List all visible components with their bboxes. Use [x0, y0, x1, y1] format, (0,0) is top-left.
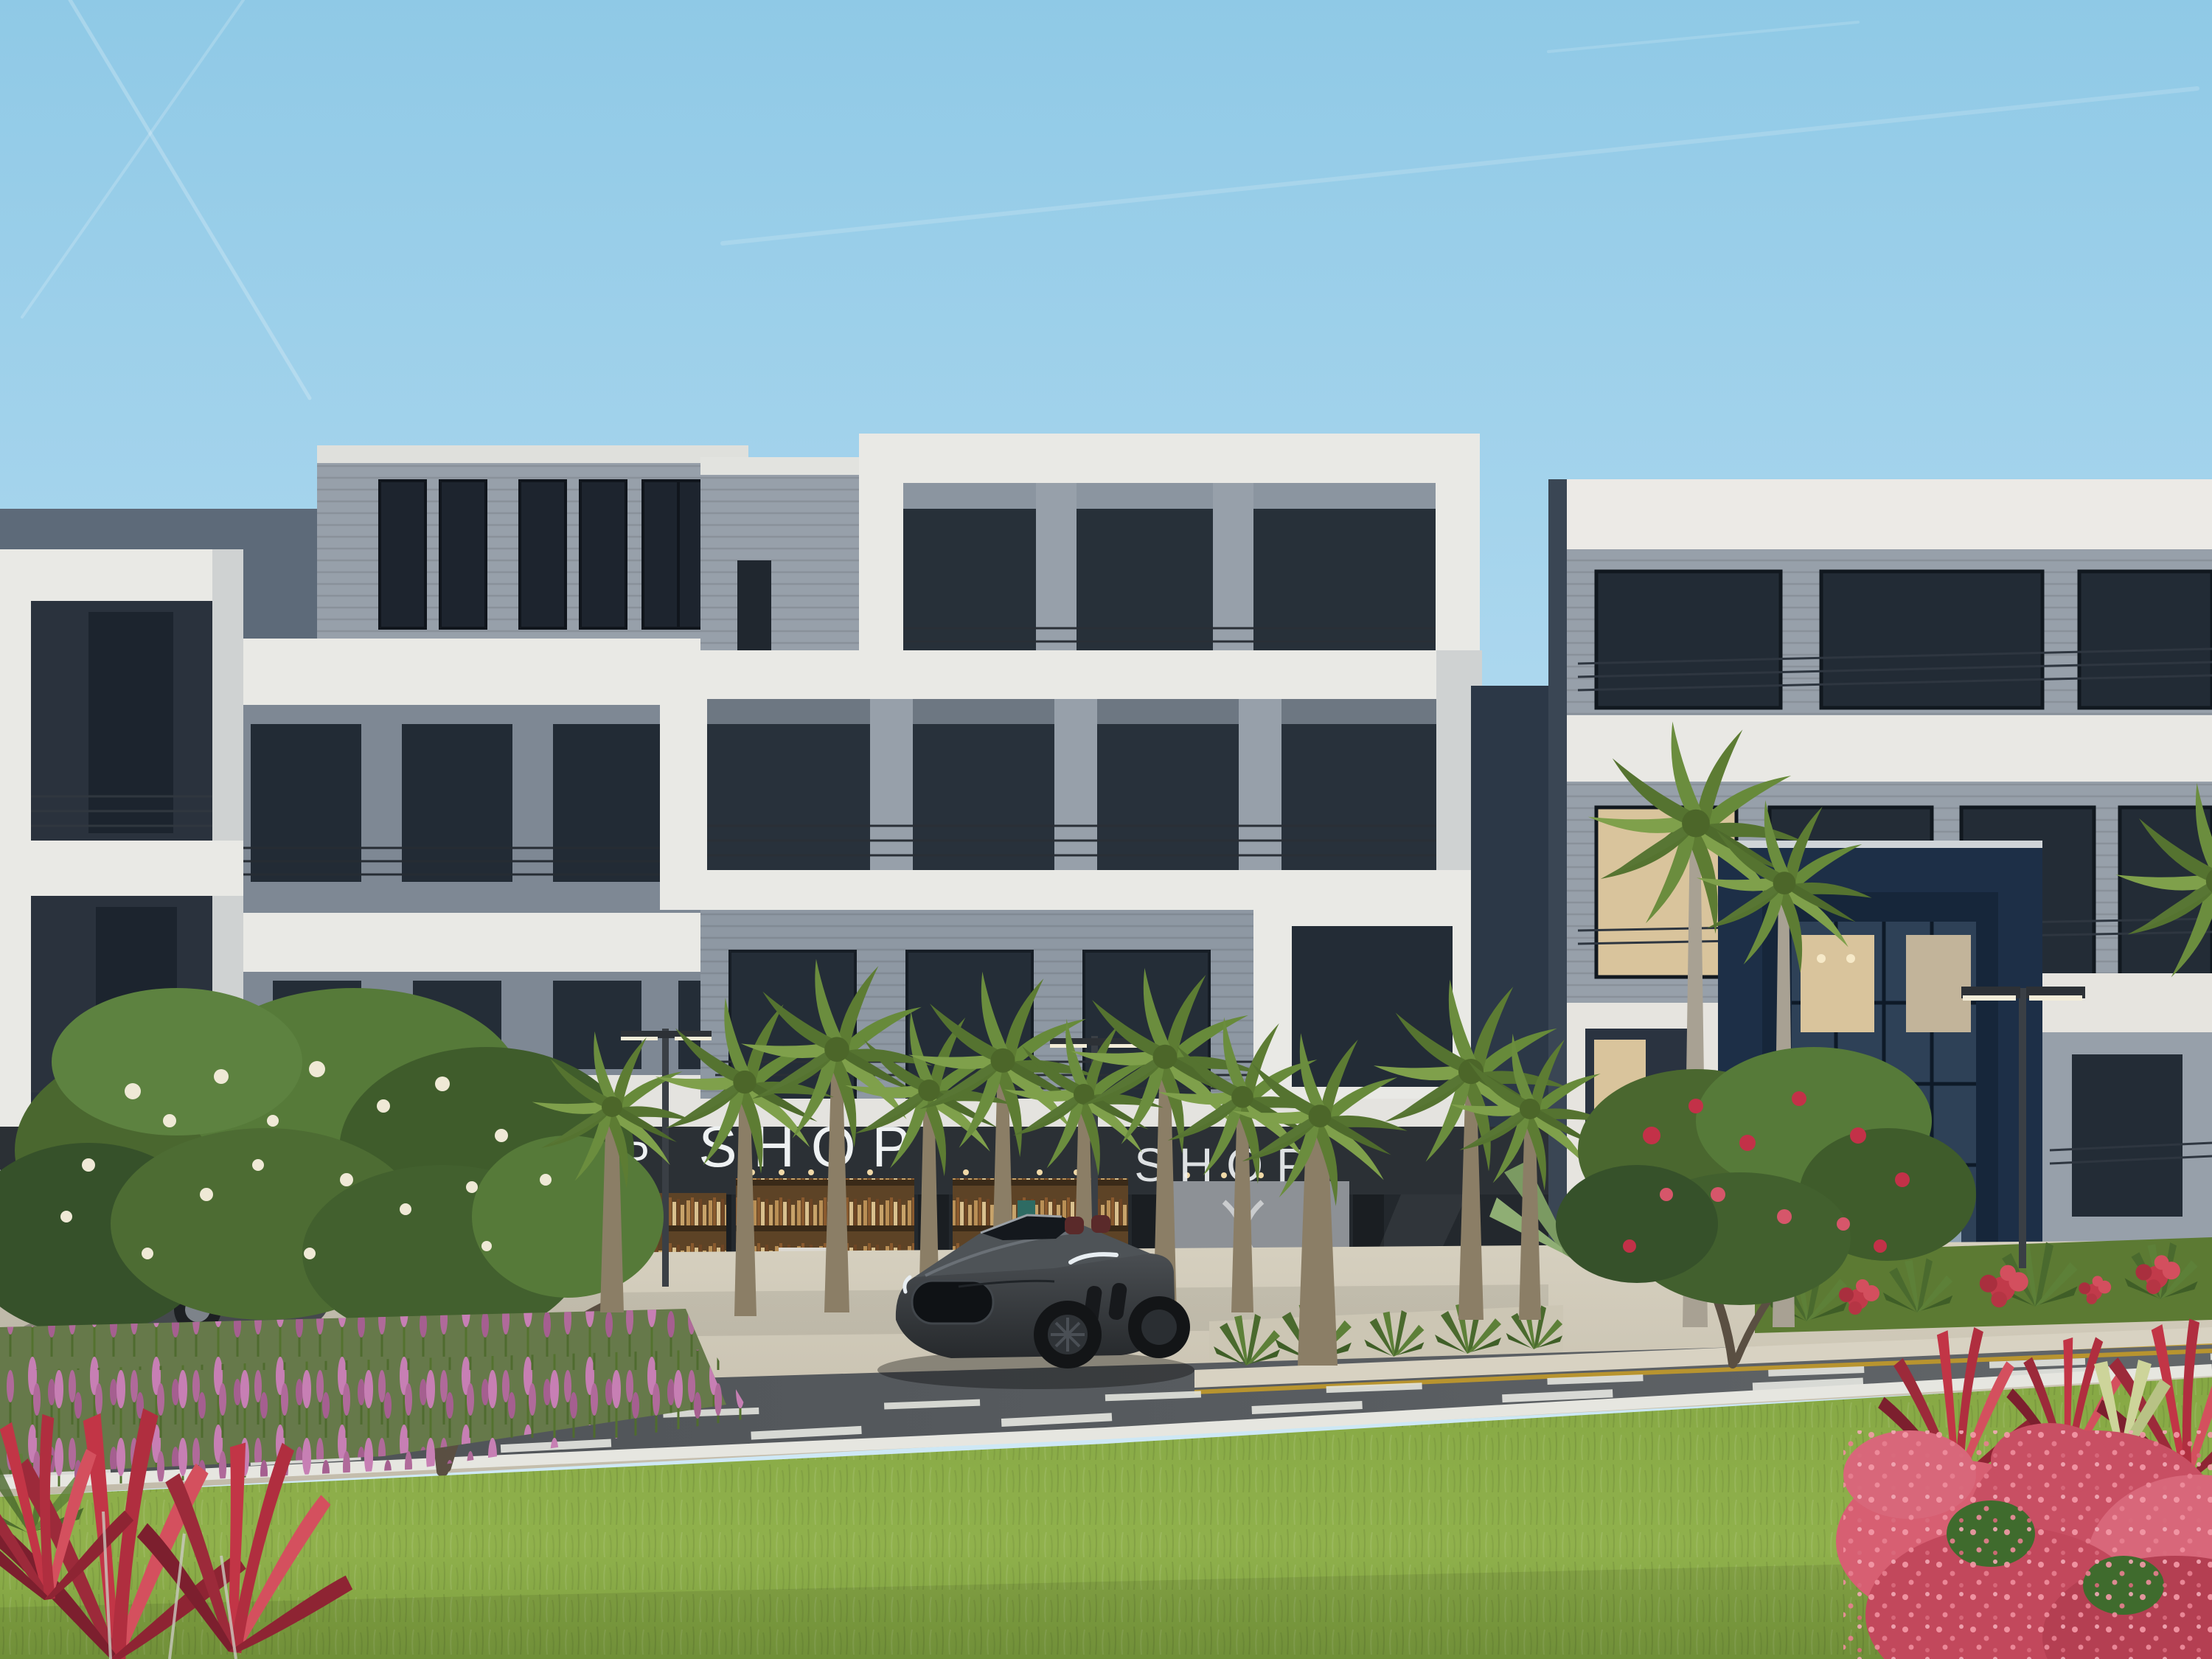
architectural-render: CAFE SHOP SHOP SHOP — [0, 0, 2212, 1659]
balcony-frame-mid — [660, 650, 1482, 910]
car-grille — [912, 1281, 993, 1324]
